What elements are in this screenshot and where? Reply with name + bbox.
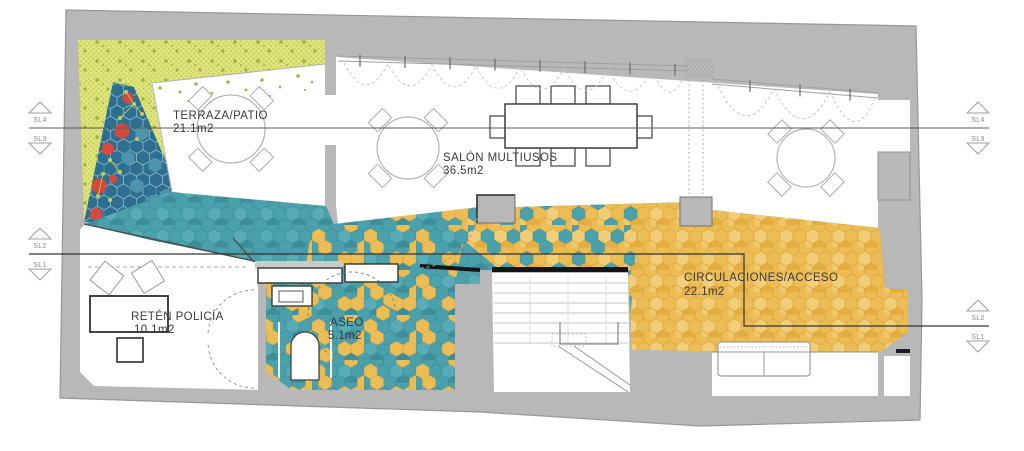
chair: [586, 148, 610, 166]
counter-box: [258, 268, 342, 283]
reten-stool: [117, 338, 143, 362]
window-opening-lower-right: [884, 356, 910, 396]
terraza-label: TERRAZA/PATIO: [173, 110, 268, 122]
counter-box-2: [345, 264, 398, 282]
marker-label-sl3: SL3: [33, 136, 46, 143]
section-arrow-down-icon: [967, 143, 989, 154]
staircase: [492, 267, 630, 392]
table-end: [637, 116, 652, 138]
circulaciones-label: CIRCULACIONES/ACCESO: [684, 272, 838, 284]
chair: [551, 86, 575, 104]
pillar: [477, 195, 515, 223]
marker-label-sl4: SL4: [971, 117, 984, 124]
terrace-door-opening: [325, 95, 336, 145]
section-arrow-up-icon: [29, 102, 51, 113]
reten-label: RETÉN POLICÍA: [131, 310, 224, 323]
aseo-area: 5.1m2: [328, 330, 362, 342]
marker-label-sl3: SL3: [971, 136, 984, 143]
toilet: [291, 332, 319, 380]
aseo-sink: [272, 286, 312, 306]
marker-label-sl2: SL2: [33, 243, 46, 250]
sofa: [718, 342, 810, 376]
section-arrow-down-icon: [29, 269, 51, 280]
circulaciones-area: 22.1m2: [684, 286, 725, 298]
long-table: [505, 104, 637, 148]
floor-plan-page: SL4 SL3 SL4 SL3 SL2 SL1 SL2 SL1 TERRAZA/…: [0, 0, 1024, 451]
section-arrow-down-icon: [29, 143, 51, 154]
terraza-area: 21.1m2: [173, 123, 214, 135]
table-end: [490, 116, 505, 138]
stair-top-wall: [492, 267, 628, 272]
wall-end-cap: [896, 349, 910, 353]
marker-label-sl2: SL2: [971, 315, 984, 322]
marker-label-sl1: SL1: [33, 262, 46, 269]
window-opening-upper-right: [878, 100, 910, 152]
chair: [516, 86, 540, 104]
pillar-2: [680, 197, 712, 226]
aseo-label: ASEO: [330, 317, 364, 329]
chair: [586, 86, 610, 104]
round-table-set: [368, 108, 447, 187]
section-arrow-up-icon: [29, 228, 51, 239]
salon-area: 36.5m2: [443, 165, 484, 177]
section-arrow-down-icon: [967, 341, 989, 352]
section-arrow-up-icon: [967, 102, 989, 113]
round-table-set-2: [768, 120, 844, 196]
floor-plan: SL4 SL3 SL4 SL3 SL2 SL1 SL2 SL1 TERRAZA/…: [0, 0, 1024, 451]
partition-dotted-block: [684, 58, 714, 78]
right-wall-pier: [878, 152, 910, 200]
section-arrow-up-icon: [967, 300, 989, 311]
salon-label: SALÓN MULTIUSOS: [443, 151, 557, 164]
marker-label-sl4: SL4: [33, 117, 46, 124]
reten-area: 10.1m2: [134, 324, 175, 336]
marker-label-sl1: SL1: [971, 334, 984, 341]
